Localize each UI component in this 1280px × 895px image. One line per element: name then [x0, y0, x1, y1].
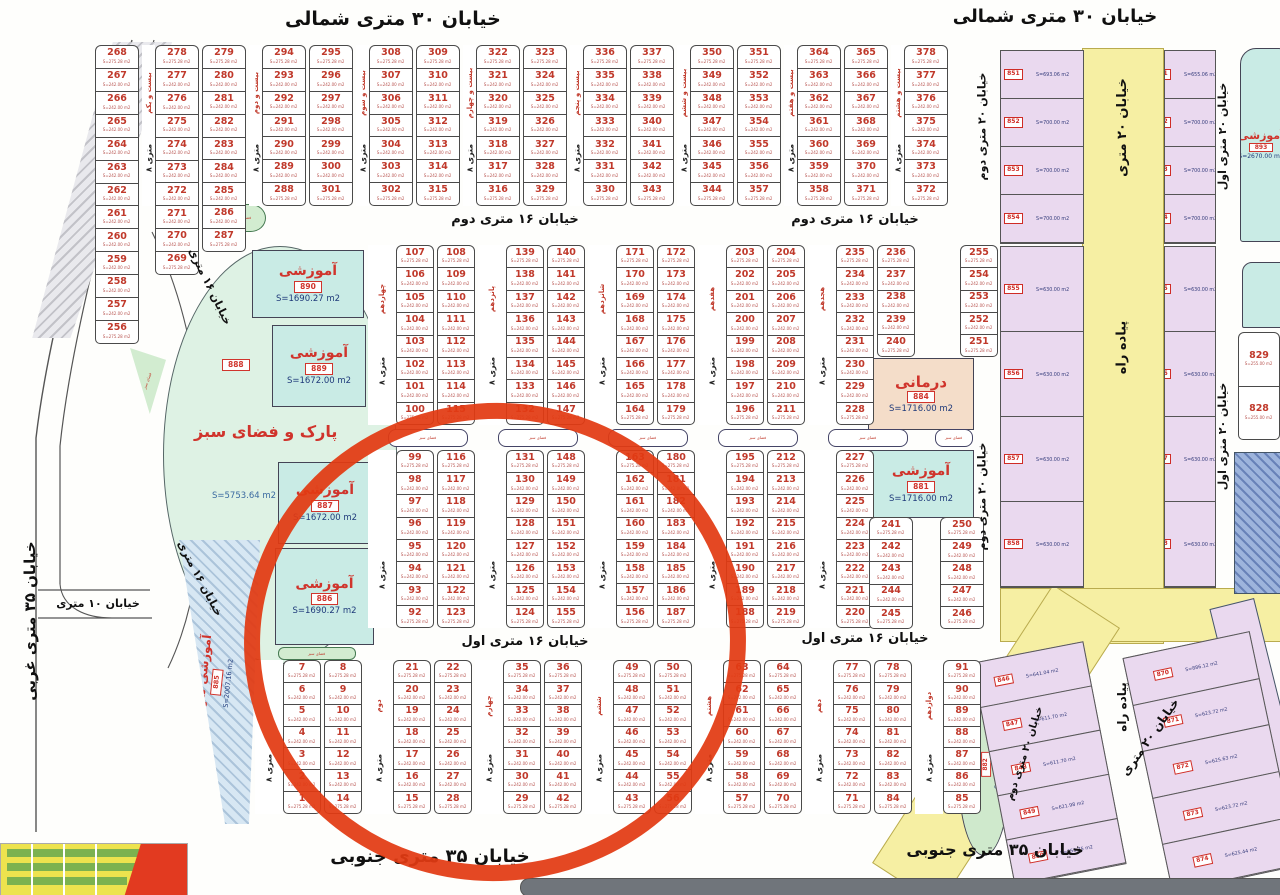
plot-93: 93S=242.00 m2	[396, 583, 434, 606]
plot-146: 146S=242.00 m2	[547, 379, 585, 402]
alley-name: پانزدهم	[488, 286, 496, 312]
plot-column: 350S=275.28 m2349S=242.00 m2348S=242.00 …	[690, 45, 734, 206]
plot-70: 70S=275.28 m2	[764, 791, 802, 814]
plot-233: 233S=242.00 m2	[836, 290, 874, 313]
plot-40: 40S=242.00 m2	[544, 747, 582, 770]
plot-170: 170S=242.00 m2	[616, 267, 654, 290]
plot-349: 349S=242.00 m2	[690, 68, 734, 92]
plot-338: 338S=242.00 m2	[630, 68, 674, 92]
alley-width-label: ۸ متری	[708, 357, 717, 385]
plot-67: 67S=242.00 m2	[764, 726, 802, 749]
plot-225: 225S=242.00 m2	[836, 494, 874, 517]
plot-227: 227S=275.28 m2	[836, 450, 874, 473]
plot-109: 109S=242.00 m2	[437, 267, 475, 290]
street-label-north30-left: خیابان ۳۰ متری شمالی	[285, 8, 495, 30]
plot-320: 320S=242.00 m2	[476, 91, 520, 115]
plot-207: 207S=242.00 m2	[767, 312, 805, 335]
alley-8m: بیست و ششم۸ متری	[677, 45, 690, 206]
plot-253: 253S=242.00 m2	[960, 290, 998, 313]
alley-width-label: ۸ متری	[598, 560, 607, 588]
plot-104: 104S=242.00 m2	[396, 312, 434, 335]
plot-2: 2S=242.00 m2	[283, 769, 321, 792]
plot-196: 196S=275.28 m2	[726, 402, 764, 425]
plot-51: 51S=242.00 m2	[654, 682, 692, 705]
plot-135: 135S=242.00 m2	[506, 335, 544, 358]
plot-298: 298S=242.00 m2	[309, 114, 353, 138]
plot-8: 8S=275.28 m2	[324, 660, 362, 683]
plot-94: 94S=242.00 m2	[396, 561, 434, 584]
plot-13: 13S=242.00 m2	[324, 769, 362, 792]
plot-333: 333S=242.00 m2	[583, 114, 627, 138]
plot-150: 150S=242.00 m2	[547, 494, 585, 517]
plot-236: 236S=275.28 m2	[877, 245, 915, 268]
plot-column: 337S=275.28 m2338S=242.00 m2339S=242.00 …	[630, 45, 674, 206]
plot-332: 332S=242.00 m2	[583, 136, 627, 160]
plot-264: 264S=242.00 m2	[95, 137, 139, 161]
plot-168: 168S=242.00 m2	[616, 312, 654, 335]
plot-317: 317S=242.00 m2	[476, 159, 520, 183]
plot-361: 361S=242.00 m2	[797, 114, 841, 138]
alley-width-label: ۸ متری	[818, 357, 827, 385]
plot-column: 212S=275.28 m2213S=242.00 m2214S=242.00 …	[767, 450, 805, 628]
plot-141: 141S=242.00 m2	[547, 267, 585, 290]
plot-64: 64S=275.28 m2	[764, 660, 802, 683]
plot-73: 73S=242.00 m2	[833, 747, 871, 770]
plot-378: 378S=275.28 m2	[904, 45, 948, 69]
road-strip-bottom	[520, 878, 1280, 895]
plot-176: 176S=242.00 m2	[657, 335, 695, 358]
plot-142: 142S=242.00 m2	[547, 290, 585, 313]
street-label-20m-first-mid: خیابان ۲۰ متری اول	[1216, 369, 1229, 504]
plot-152: 152S=242.00 m2	[547, 539, 585, 562]
plot-828: 828S=255.00 m2	[1238, 386, 1280, 441]
plot-281: 281S=242.00 m2	[202, 91, 246, 115]
plot-291: 291S=242.00 m2	[262, 114, 306, 138]
plot-column: 163S=275.28 m2162S=242.00 m2161S=242.00 …	[616, 450, 654, 628]
plot-251: 251S=275.28 m2	[960, 334, 998, 357]
plot-204: 204S=275.28 m2	[767, 245, 805, 268]
plot-35: 35S=275.28 m2	[503, 660, 541, 683]
plot-99: 99S=275.28 m2	[396, 450, 434, 473]
plot-136: 136S=242.00 m2	[506, 312, 544, 335]
plot-201: 201S=242.00 m2	[726, 290, 764, 313]
plot-89: 89S=242.00 m2	[943, 704, 981, 727]
plot-232: 232S=242.00 m2	[836, 312, 874, 335]
plot-167: 167S=242.00 m2	[616, 335, 654, 358]
plot-195: 195S=275.28 m2	[726, 450, 764, 473]
plot-106: 106S=242.00 m2	[396, 267, 434, 290]
plot-87: 87S=242.00 m2	[943, 747, 981, 770]
plot-54: 54S=242.00 m2	[654, 747, 692, 770]
plot-182: 182S=242.00 m2	[657, 494, 695, 517]
plot-36: 36S=275.28 m2	[544, 660, 582, 683]
plot-180: 180S=275.28 m2	[657, 450, 695, 473]
alley-8m: هشتم۸ متری	[695, 660, 723, 814]
plot-261: 261S=242.00 m2	[95, 205, 139, 229]
street-label-west35: خیابان ۳۵ متری غربی	[21, 526, 39, 716]
plot-18: 18S=242.00 m2	[393, 726, 431, 749]
street-label-20m-second-top: خیابان ۲۰ متری دوم	[976, 57, 989, 197]
plot-295: 295S=275.28 m2	[309, 45, 353, 69]
alley-width-label: ۸ متری	[485, 754, 494, 782]
alley-name: چهارم	[485, 695, 493, 716]
plot-187: 187S=275.28 m2	[657, 605, 695, 628]
plot-column: 22S=275.28 m223S=242.00 m224S=242.00 m22…	[434, 660, 472, 814]
subdivision-map: خدمات شهری _ اداری 895 888 پارک و فضای س…	[0, 0, 1280, 895]
plot-323: 323S=275.28 m2	[523, 45, 567, 69]
plot-76: 76S=242.00 m2	[833, 682, 871, 705]
plot-4: 4S=242.00 m2	[283, 726, 321, 749]
plot-216: 216S=242.00 m2	[767, 539, 805, 562]
plot-300: 300S=242.00 m2	[309, 159, 353, 183]
alley-width-label: ۸ متری	[251, 144, 260, 172]
plot-335: 335S=242.00 m2	[583, 68, 627, 92]
plot-10: 10S=242.00 m2	[324, 704, 362, 727]
plot-287: 287S=275.28 m2	[202, 228, 246, 252]
street-label-20m-yellow: خیابان ۲۰ متری	[1115, 60, 1130, 195]
plot-351: 351S=275.28 m2	[737, 45, 781, 69]
plot-193: 193S=242.00 m2	[726, 494, 764, 517]
plot-57: 57S=275.28 m2	[723, 791, 761, 814]
plot-column: 140S=275.28 m2141S=242.00 m2142S=242.00 …	[547, 245, 585, 425]
plot-364: 364S=275.28 m2	[797, 45, 841, 69]
plot-column: 49S=275.28 m248S=242.00 m247S=242.00 m24…	[613, 660, 651, 814]
plot-122: 122S=242.00 m2	[437, 583, 475, 606]
plot-155: 155S=275.28 m2	[547, 605, 585, 628]
plot-34: 34S=242.00 m2	[503, 682, 541, 705]
plot-237: 237S=242.00 m2	[877, 267, 915, 290]
plot-172: 172S=275.28 m2	[657, 245, 695, 268]
plot-311: 311S=242.00 m2	[416, 91, 460, 115]
plot-186: 186S=242.00 m2	[657, 583, 695, 606]
alley-width-label: ۸ متری	[786, 144, 795, 172]
plot-229: 229S=242.00 m2	[836, 379, 874, 402]
alley-8m: بیست و دوم۸ متری	[249, 45, 262, 206]
plot-1: 1S=275.28 m2	[283, 791, 321, 814]
plot-column: 108S=275.28 m2109S=242.00 m2110S=242.00 …	[437, 245, 475, 425]
plot-91: 91S=275.28 m2	[943, 660, 981, 683]
plot-304: 304S=242.00 m2	[369, 136, 413, 160]
plot-column: 21S=275.28 m220S=242.00 m219S=242.00 m21…	[393, 660, 431, 814]
street-label-16m-first-right: خیابان ۱۶ متری اول	[790, 631, 940, 646]
plot-299: 299S=242.00 m2	[309, 136, 353, 160]
plot-134: 134S=242.00 m2	[506, 357, 544, 380]
plot-56: 56S=275.28 m2	[654, 791, 692, 814]
plot-215: 215S=242.00 m2	[767, 517, 805, 540]
plot-339: 339S=242.00 m2	[630, 91, 674, 115]
plot-77: 77S=275.28 m2	[833, 660, 871, 683]
plot-26: 26S=242.00 m2	[434, 747, 472, 770]
plot-279: 279S=275.28 m2	[202, 45, 246, 69]
plot-350: 350S=275.28 m2	[690, 45, 734, 69]
plot-177: 177S=242.00 m2	[657, 357, 695, 380]
plot-340: 340S=242.00 m2	[630, 114, 674, 138]
alley-8m: ۸ متری	[368, 450, 396, 628]
plot-358: 358S=275.28 m2	[797, 182, 841, 206]
plot-80: 80S=242.00 m2	[874, 704, 912, 727]
plot-160: 160S=242.00 m2	[616, 517, 654, 540]
alley-8m: دوم۸ متری	[365, 660, 393, 814]
plot-130: 130S=242.00 m2	[506, 472, 544, 495]
plot-325: 325S=242.00 m2	[523, 91, 567, 115]
plot-293: 293S=242.00 m2	[262, 68, 306, 92]
plot-9: 9S=242.00 m2	[324, 682, 362, 705]
plot-246: 246S=275.28 m2	[940, 606, 984, 629]
plot-84: 84S=275.28 m2	[874, 791, 912, 814]
inset-overview-map	[0, 843, 188, 895]
alley-8m: ششم۸ متری	[585, 660, 613, 814]
green-label: فضای سبز	[945, 436, 962, 440]
plot-column: 131S=275.28 m2130S=242.00 m2129S=242.00 …	[506, 450, 544, 628]
plot-277: 277S=242.00 m2	[155, 68, 199, 92]
plot-97: 97S=242.00 m2	[396, 494, 434, 517]
plot-column: 295S=275.28 m2296S=242.00 m2297S=242.00 …	[309, 45, 353, 206]
plot-290: 290S=242.00 m2	[262, 136, 306, 160]
plot-326: 326S=242.00 m2	[523, 114, 567, 138]
plot-211: 211S=275.28 m2	[767, 402, 805, 425]
plot-column: 241S=275.28 m2242S=242.00 m2243S=242.00 …	[869, 517, 913, 629]
plot-280: 280S=242.00 m2	[202, 68, 246, 92]
alley-8m: بیست و هفتم۸ متری	[784, 45, 797, 206]
plot-241: 241S=275.28 m2	[869, 517, 913, 540]
plot-244: 244S=242.00 m2	[869, 584, 913, 607]
street-label-south35-right: خیابان ۳۵ متری جنوبی	[880, 840, 1110, 859]
plot-188: 188S=275.28 m2	[726, 605, 764, 628]
plot-115: 115S=275.28 m2	[437, 402, 475, 425]
street-label-south35-left: خیابان ۳۵ متری جنوبی	[300, 846, 560, 867]
plot-286: 286S=242.00 m2	[202, 205, 246, 229]
plot-33: 33S=242.00 m2	[503, 704, 541, 727]
plot-310: 310S=242.00 m2	[416, 68, 460, 92]
plot-72: 72S=242.00 m2	[833, 769, 871, 792]
plot-column: 308S=275.28 m2307S=242.00 m2306S=242.00 …	[369, 45, 413, 206]
alley-width-label: ۸ متری	[818, 560, 827, 588]
plot-228: 228S=275.28 m2	[836, 402, 874, 425]
plot-16: 16S=242.00 m2	[393, 769, 431, 792]
plot-column: 204S=275.28 m2205S=242.00 m2206S=242.00 …	[767, 245, 805, 425]
green-strip: فضای سبز	[608, 429, 688, 447]
plot-101: 101S=242.00 m2	[396, 379, 434, 402]
plot-198: 198S=242.00 m2	[726, 357, 764, 380]
street-label-pedestrian-upper: پیاده راه	[1115, 303, 1130, 393]
plot-171: 171S=275.28 m2	[616, 245, 654, 268]
plot-63: 63S=275.28 m2	[723, 660, 761, 683]
plot-131: 131S=275.28 m2	[506, 450, 544, 473]
plot-166: 166S=242.00 m2	[616, 357, 654, 380]
plot-258: 258S=242.00 m2	[95, 274, 139, 298]
alley-width-label: ۸ متری	[378, 560, 387, 588]
plot-105: 105S=242.00 m2	[396, 290, 434, 313]
alley-width-label: ۸ متری	[375, 754, 384, 782]
street-label-10m: خیابان ۱۰ متری	[48, 597, 148, 610]
plot-359: 359S=242.00 m2	[797, 159, 841, 183]
plot-48: 48S=242.00 m2	[613, 682, 651, 705]
plot-357: 357S=275.28 m2	[737, 182, 781, 206]
plot-306: 306S=242.00 m2	[369, 91, 413, 115]
plot-341: 341S=242.00 m2	[630, 136, 674, 160]
plot-47: 47S=242.00 m2	[613, 704, 651, 727]
plot-69: 69S=242.00 m2	[764, 769, 802, 792]
plot-265: 265S=242.00 m2	[95, 114, 139, 138]
plot-301: 301S=275.28 m2	[309, 182, 353, 206]
alley-name: هجدهم	[818, 287, 826, 311]
plot-238: 238S=242.00 m2	[877, 290, 915, 313]
alley-width-label: ۸ متری	[708, 560, 717, 588]
plot-108: 108S=275.28 m2	[437, 245, 475, 268]
plot-44: 44S=242.00 m2	[613, 769, 651, 792]
plot-199: 199S=242.00 m2	[726, 335, 764, 358]
plot-column: 36S=275.28 m237S=242.00 m238S=242.00 m23…	[544, 660, 582, 814]
plot-79: 79S=242.00 m2	[874, 682, 912, 705]
plot-278: 278S=275.28 m2	[155, 45, 199, 69]
plot-column: 91S=275.28 m290S=242.00 m289S=242.00 m28…	[943, 660, 981, 814]
plot-324: 324S=242.00 m2	[523, 68, 567, 92]
plot-355: 355S=242.00 m2	[737, 136, 781, 160]
plot-column: 829S=255.00 m2828S=255.00 m2	[1238, 332, 1280, 440]
alley-name: ششم	[595, 696, 603, 716]
alley-width-label: ۸ متری	[488, 560, 497, 588]
plot-259: 259S=242.00 m2	[95, 251, 139, 275]
plot-90: 90S=242.00 m2	[943, 682, 981, 705]
plot-158: 158S=242.00 m2	[616, 561, 654, 584]
street-label-16m-second-left: خیابان ۱۶ متری دوم	[445, 212, 585, 227]
plot-192: 192S=242.00 m2	[726, 517, 764, 540]
plot-112: 112S=242.00 m2	[437, 335, 475, 358]
plot-296: 296S=242.00 m2	[309, 68, 353, 92]
alley-8m: پانزدهم۸ متری	[478, 245, 506, 425]
plot-367: 367S=242.00 m2	[844, 91, 888, 115]
plot-347: 347S=242.00 m2	[690, 114, 734, 138]
plot-322: 322S=275.28 m2	[476, 45, 520, 69]
plot-61: 61S=242.00 m2	[723, 704, 761, 727]
alley-8m: بیست و چهارم۸ متری	[463, 45, 476, 206]
alley-name: هشتم	[705, 696, 713, 716]
green-label: فضای سبز	[859, 436, 876, 440]
plot-114: 114S=242.00 m2	[437, 379, 475, 402]
green-strip: فضای سبز	[388, 429, 468, 447]
plot-85: 85S=275.28 m2	[943, 791, 981, 814]
plot-274: 274S=242.00 m2	[155, 137, 199, 161]
plot-330: 330S=275.28 m2	[583, 182, 627, 206]
plot-276: 276S=242.00 m2	[155, 91, 199, 115]
plot-372: 372S=275.28 m2	[904, 182, 948, 206]
plot-147: 147S=275.28 m2	[547, 402, 585, 425]
green-strip: فضای سبز	[828, 429, 908, 447]
plot-30: 30S=242.00 m2	[503, 769, 541, 792]
plot-column: 99S=275.28 m298S=242.00 m297S=242.00 m29…	[396, 450, 434, 628]
plot-272: 272S=242.00 m2	[155, 182, 199, 206]
plot-32: 32S=242.00 m2	[503, 726, 541, 749]
plot-376: 376S=242.00 m2	[904, 91, 948, 115]
plot-275: 275S=242.00 m2	[155, 114, 199, 138]
alley-width-label: ۸ متری	[378, 357, 387, 385]
plot-column: 268S=275.28 m2267S=242.00 m2266S=242.00 …	[95, 45, 139, 344]
plot-92: 92S=275.28 m2	[396, 605, 434, 628]
plot-column: 7S=275.28 m26S=242.00 m25S=242.00 m24S=2…	[283, 660, 321, 814]
alley-name: دوم	[375, 700, 383, 713]
plot-60: 60S=242.00 m2	[723, 726, 761, 749]
plot-321: 321S=242.00 m2	[476, 68, 520, 92]
plot-86: 86S=242.00 m2	[943, 769, 981, 792]
plot-165: 165S=242.00 m2	[616, 379, 654, 402]
street-label-16m-first-left: خیابان ۱۶ متری اول	[450, 634, 600, 649]
plot-292: 292S=242.00 m2	[262, 91, 306, 115]
plot-181: 181S=242.00 m2	[657, 472, 695, 495]
plot-343: 343S=275.28 m2	[630, 182, 674, 206]
plot-15: 15S=275.28 m2	[393, 791, 431, 814]
alley-8m: بیست و سوم۸ متری	[356, 45, 369, 206]
plot-148: 148S=275.28 m2	[547, 450, 585, 473]
plot-103: 103S=242.00 m2	[396, 335, 434, 358]
plot-262: 262S=242.00 m2	[95, 183, 139, 207]
plot-375: 375S=242.00 m2	[904, 114, 948, 138]
plot-352: 352S=242.00 m2	[737, 68, 781, 92]
plot-344: 344S=275.28 m2	[690, 182, 734, 206]
plot-318: 318S=242.00 m2	[476, 136, 520, 160]
plot-96: 96S=242.00 m2	[396, 517, 434, 540]
plot-75: 75S=242.00 m2	[833, 704, 871, 727]
plot-243: 243S=242.00 m2	[869, 561, 913, 584]
plot-144: 144S=242.00 m2	[547, 335, 585, 358]
plot-183: 183S=242.00 m2	[657, 517, 695, 540]
plot-129: 129S=242.00 m2	[506, 494, 544, 517]
plot-82: 82S=242.00 m2	[874, 747, 912, 770]
plot-120: 120S=242.00 m2	[437, 539, 475, 562]
alley-8m: هفدهم۸ متری	[698, 245, 726, 425]
plot-column: 148S=275.28 m2149S=242.00 m2150S=242.00 …	[547, 450, 585, 628]
alley-width-label: ۸ متری	[265, 754, 274, 782]
plot-268: 268S=275.28 m2	[95, 45, 139, 69]
alley-name: بیست و هشتم	[894, 69, 902, 119]
alley-name: بیست و سوم	[359, 70, 367, 116]
plot-191: 191S=242.00 m2	[726, 539, 764, 562]
plot-294: 294S=275.28 m2	[262, 45, 306, 69]
plot-368: 368S=242.00 m2	[844, 114, 888, 138]
plot-200: 200S=242.00 m2	[726, 312, 764, 335]
alley-width-label: ۸ متری	[595, 754, 604, 782]
alley-name: بیست و دوم	[252, 72, 260, 114]
alley-name: بیست و یکم	[145, 73, 153, 114]
plot-235: 235S=275.28 m2	[836, 245, 874, 268]
plot-column: 8S=275.28 m29S=242.00 m210S=242.00 m211S…	[324, 660, 362, 814]
plot-28: 28S=275.28 m2	[434, 791, 472, 814]
plot-50: 50S=275.28 m2	[654, 660, 692, 683]
green-strip: فضای سبز	[498, 429, 578, 447]
plot-208: 208S=242.00 m2	[767, 335, 805, 358]
plot-334: 334S=242.00 m2	[583, 91, 627, 115]
plot-329: 329S=275.28 m2	[523, 182, 567, 206]
plot-117: 117S=242.00 m2	[437, 472, 475, 495]
plot-110: 110S=242.00 m2	[437, 290, 475, 313]
plot-column: 323S=275.28 m2324S=242.00 m2325S=242.00 …	[523, 45, 567, 206]
plot-41: 41S=242.00 m2	[544, 769, 582, 792]
alley-name: هفدهم	[708, 287, 716, 311]
plot-124: 124S=275.28 m2	[506, 605, 544, 628]
plot-327: 327S=242.00 m2	[523, 136, 567, 160]
plot-143: 143S=242.00 m2	[547, 312, 585, 335]
plot-66: 66S=242.00 m2	[764, 704, 802, 727]
plot-194: 194S=242.00 m2	[726, 472, 764, 495]
plot-column: 116S=275.28 m2117S=242.00 m2118S=242.00 …	[437, 450, 475, 628]
plot-column: 171S=275.28 m2170S=242.00 m2169S=242.00 …	[616, 245, 654, 425]
plot-213: 213S=242.00 m2	[767, 472, 805, 495]
plot-239: 239S=242.00 m2	[877, 312, 915, 335]
plot-302: 302S=275.28 m2	[369, 182, 413, 206]
street-label-20m-first-top: خیابان ۲۰ متری اول	[1216, 69, 1229, 204]
plot-95: 95S=242.00 m2	[396, 539, 434, 562]
plot-39: 39S=242.00 m2	[544, 726, 582, 749]
alley-name: بیست و پنجم	[573, 71, 581, 116]
